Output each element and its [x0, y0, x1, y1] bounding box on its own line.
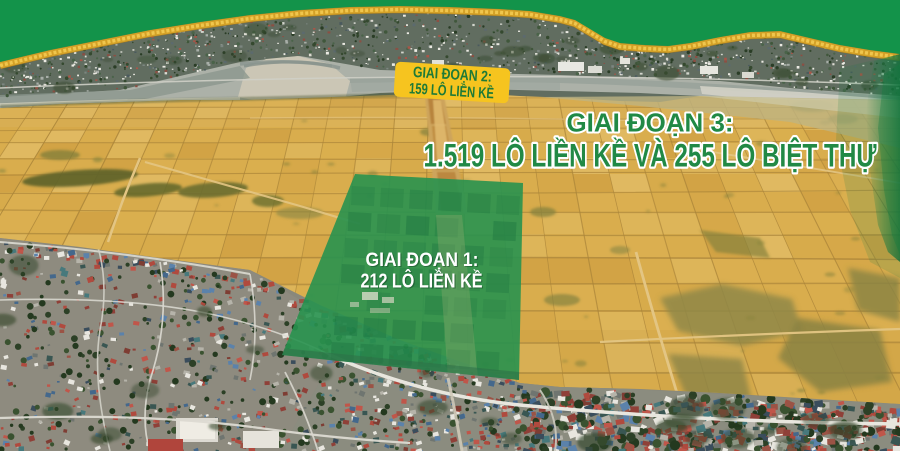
svg-text:GIAI ĐOẠN 3:: GIAI ĐOẠN 3:: [567, 108, 734, 138]
svg-text:1.519 LÔ LIỀN KỀ VÀ 255 LÔ BIỆ: 1.519 LÔ LIỀN KỀ VÀ 255 LÔ BIỆT THỰ: [424, 138, 877, 174]
svg-text:212 LÔ LIỀN KỀ: 212 LÔ LIỀN KỀ: [361, 269, 483, 293]
svg-text:GIAI ĐOẠN 1:: GIAI ĐOẠN 1:: [366, 249, 479, 271]
